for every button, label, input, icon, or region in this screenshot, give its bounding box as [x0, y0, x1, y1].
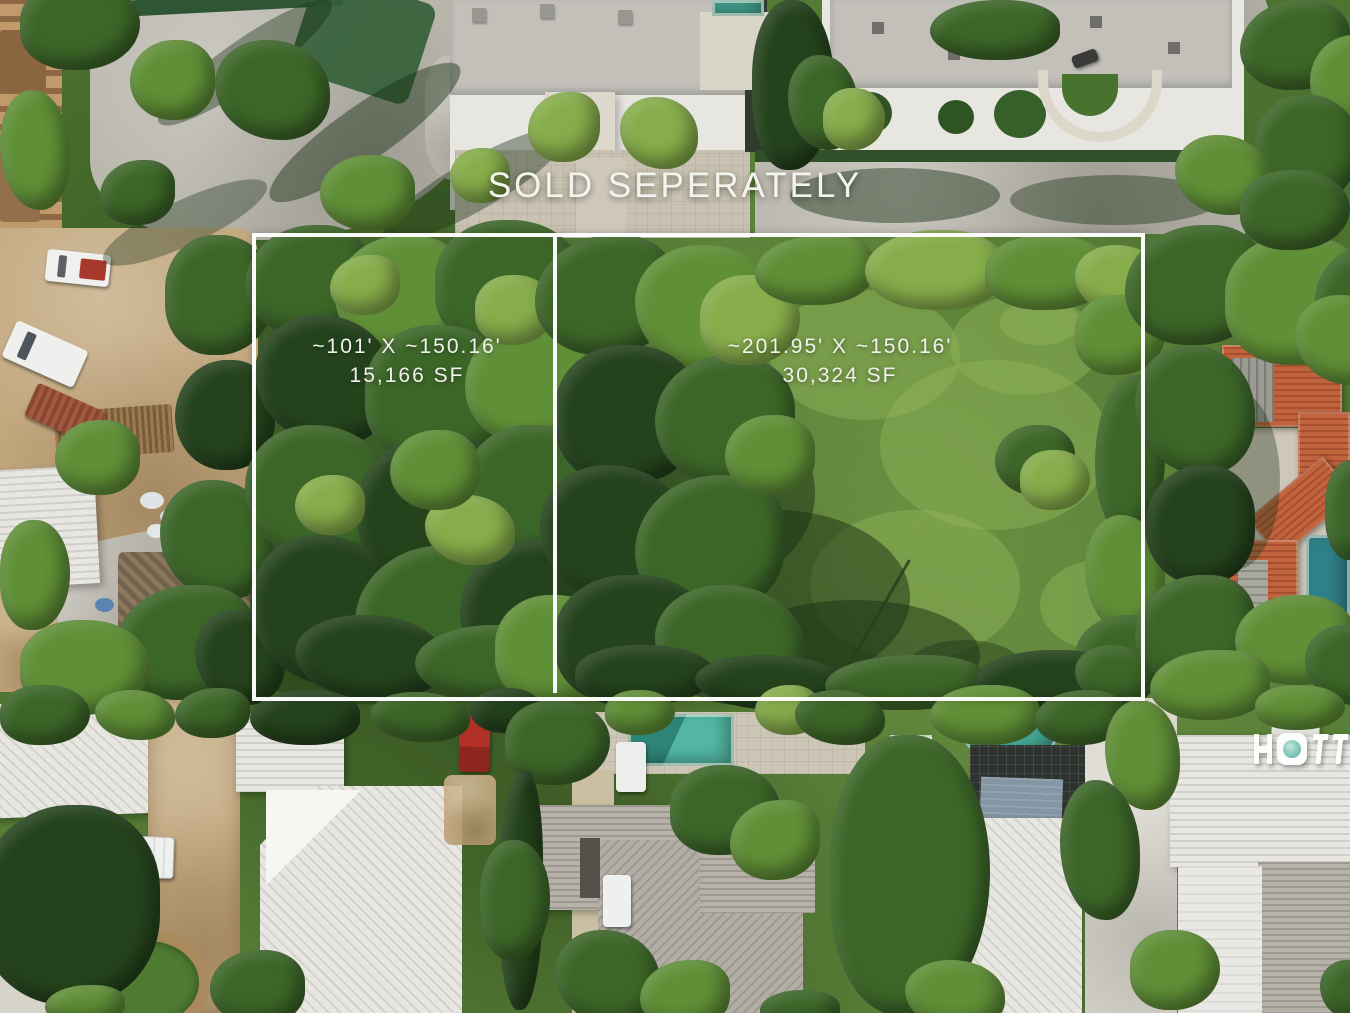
parcel-outline [252, 233, 1145, 701]
sold-separately-title: SOLD SEPERATELY [0, 166, 1350, 206]
watermark-logo [1254, 731, 1350, 767]
tree-canopy [1130, 930, 1220, 1010]
watermark-lens-icon [1277, 733, 1307, 765]
tree-canopy [55, 420, 140, 495]
right-parcel-dimensions: ~201.95' X ~150.16' [690, 332, 990, 361]
tree-canopy [760, 990, 840, 1013]
tree-canopy [528, 92, 600, 162]
left-parcel-dimensions: ~101' X ~150.16' [262, 332, 552, 361]
tree-canopy [0, 685, 90, 745]
watermark-letter-t [1310, 734, 1328, 764]
tree-canopy [130, 40, 215, 120]
tree-canopy [95, 690, 175, 740]
parcel-divider-line [553, 237, 557, 693]
tree-canopy [1145, 465, 1255, 585]
tree-canopy [1325, 460, 1350, 560]
tree-canopy [930, 0, 1060, 60]
left-parcel-area: 15,166 SF [262, 361, 552, 390]
right-parcel-area: 30,324 SF [690, 361, 990, 390]
left-parcel-label: ~101' X ~150.16' 15,166 SF [262, 332, 552, 390]
watermark-letter-h [1254, 734, 1272, 764]
tree-canopy [210, 950, 305, 1013]
tree-canopy [175, 688, 250, 738]
watermark-letter-t [1330, 734, 1348, 764]
right-parcel-label: ~201.95' X ~150.16' 30,324 SF [690, 332, 990, 390]
tree-canopy [0, 805, 160, 1005]
tree-canopy [20, 0, 140, 70]
tree-canopy [905, 960, 1005, 1013]
tree-canopy [823, 88, 885, 150]
tree-canopy [620, 97, 698, 169]
tree-canopy [1255, 685, 1345, 730]
tree-canopy [215, 40, 330, 140]
tree-canopy [1320, 960, 1350, 1013]
tree-canopy [0, 520, 70, 630]
aerial-photo: SOLD SEPERATELY ~101' X ~150.16' 15,166 … [0, 0, 1350, 1013]
